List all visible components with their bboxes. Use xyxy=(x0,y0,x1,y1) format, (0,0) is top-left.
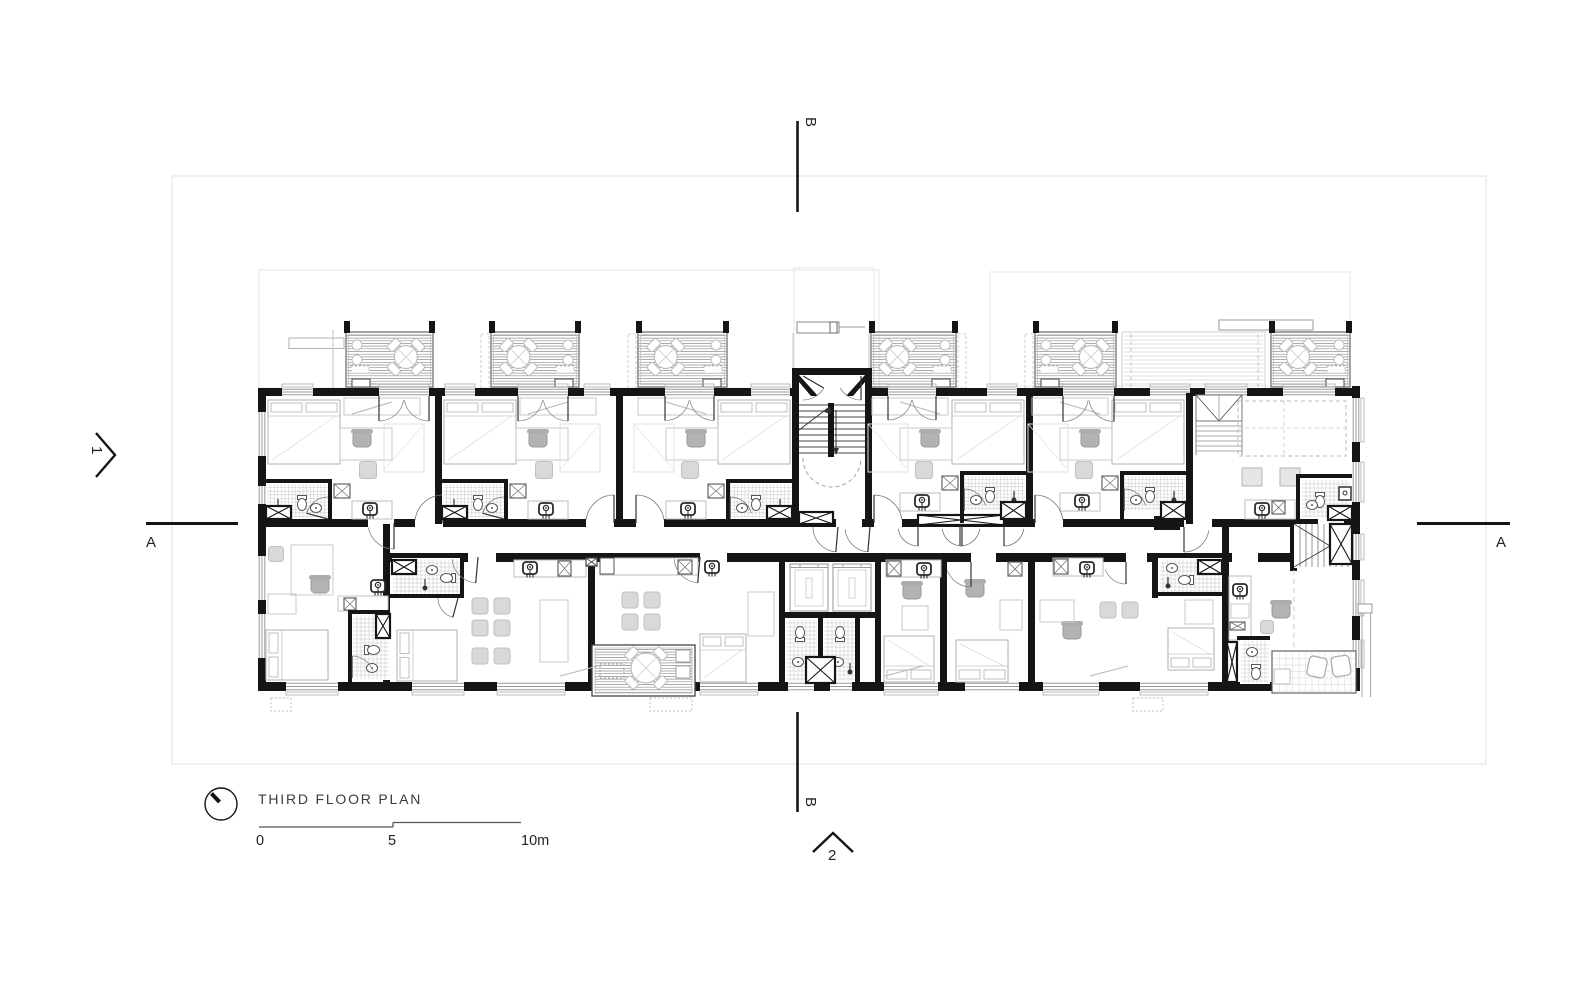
svg-text:A: A xyxy=(146,534,156,551)
svg-text:B: B xyxy=(802,117,819,127)
svg-text:B: B xyxy=(802,797,819,807)
svg-text:A: A xyxy=(1496,534,1506,551)
svg-text:10m: 10m xyxy=(521,833,549,849)
svg-text:0: 0 xyxy=(256,833,264,849)
svg-text:THIRD FLOOR PLAN: THIRD FLOOR PLAN xyxy=(258,791,422,807)
svg-text:5: 5 xyxy=(388,833,396,849)
svg-text:2: 2 xyxy=(828,847,836,864)
svg-text:1: 1 xyxy=(88,446,105,454)
